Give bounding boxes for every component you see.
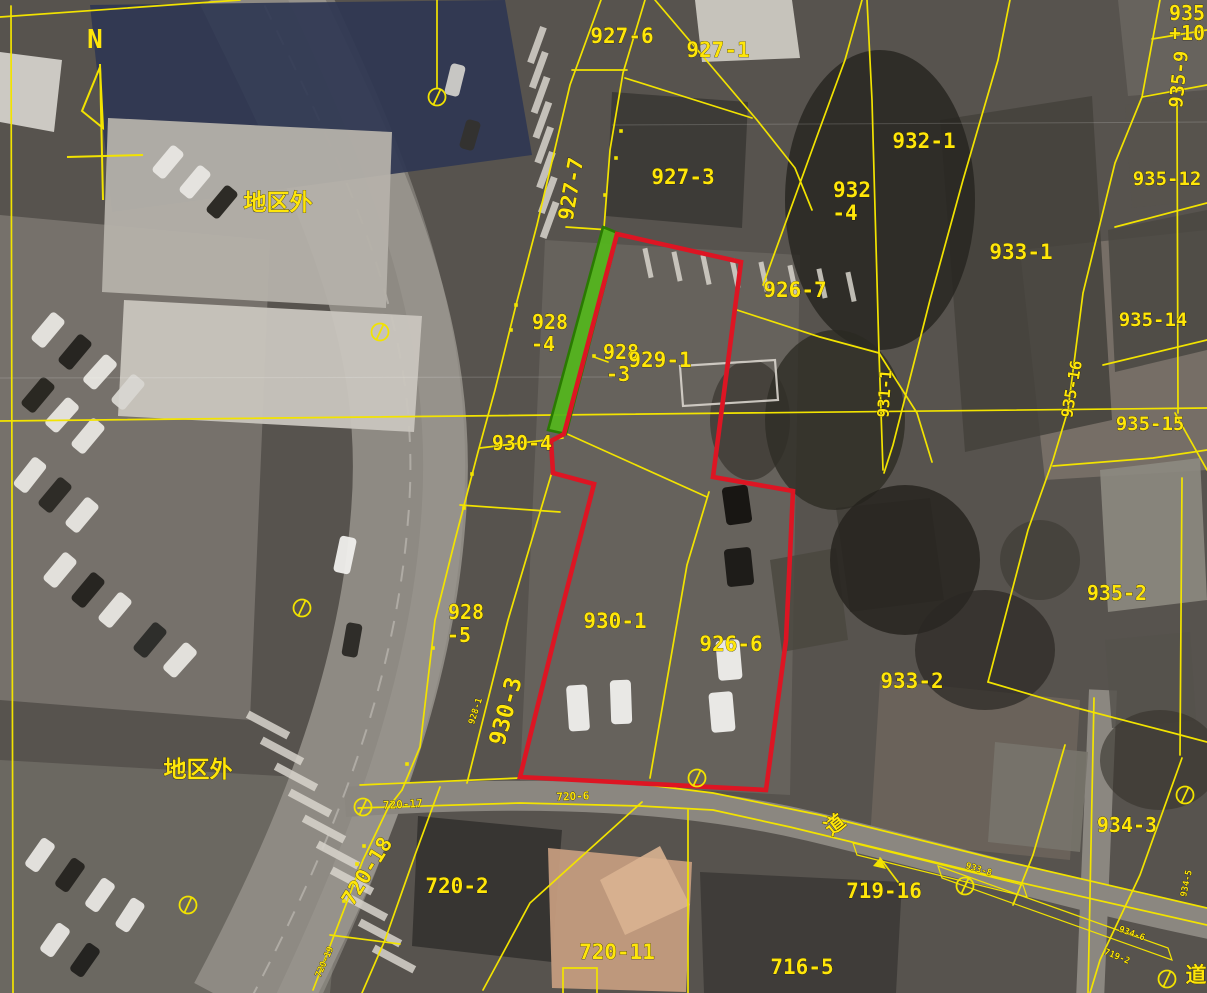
building-roof [0,52,62,132]
parcel-label-930-4: 930-4 [492,431,552,455]
parcel-label-928: 928 [532,310,568,334]
parcel-label-927-6: 927-6 [590,24,653,48]
survey-marker-slash [299,601,306,616]
parcel-label-927-7: 927-7 [554,156,589,222]
parcel-label-xxx: 地区外 [244,189,313,216]
boundary-tick-dot [592,354,596,358]
parcel-label-720-2: 720-2 [425,874,488,898]
parcel-label-930-1: 930-1 [583,609,646,633]
parcel-label-933-2: 933-2 [880,669,943,693]
parcel-label--3: -3 [606,362,630,386]
road-marking-stripe [248,714,289,736]
parcel-label--4: -4 [531,332,555,356]
building-roof [606,92,748,228]
road-surface [1090,690,1103,993]
cadastral-aerial-map: 927-6927-1927-7927-3932-1932-4933-1926-7… [0,0,1207,993]
parked-car [724,547,755,588]
boundary-tick-dot [514,303,518,307]
parcel-label-934-6: 934-6 [1117,925,1146,944]
parcel-label-929-1: 929-1 [628,348,691,372]
parked-car [566,684,590,731]
parcel-label-934-5: 934-5 [1179,869,1194,898]
building-roof [118,300,422,432]
building-roof [1108,210,1207,372]
survey-marker-icon [294,600,311,617]
parcel-label-x: 道 [1186,963,1207,987]
parcel-label--4: -4 [832,201,857,225]
parcel-label-720-11: 720-11 [579,940,655,964]
parcel-label-928: 928 [448,600,484,624]
parcel-boundary-line [1177,100,1178,413]
aerial-photo-layer [0,0,1207,993]
parcel-label-926-7: 926-7 [763,278,826,302]
boundary-tick-dot [614,156,618,160]
parcel-label-x10: +10 [1169,21,1205,45]
road-marking-stripe [360,922,401,944]
map-viewport: 927-6927-1927-7927-3932-1932-4933-1926-7… [0,0,1207,993]
tree-canopy [785,50,975,350]
parcel-label-935-14: 935-14 [1119,309,1188,331]
boundary-tick-dot [405,762,409,766]
parcel-label--5: -5 [447,623,471,647]
parcel-label-927-1: 927-1 [686,38,749,62]
parcel-label-932-1: 932-1 [892,129,955,153]
survey-marker-slash [1164,972,1171,987]
parcel-label-716-5: 716-5 [770,955,833,979]
boundary-tick-dot [362,844,366,848]
parcel-label-927-3: 927-3 [651,165,714,189]
parcel-label-926-6: 926-6 [699,632,762,656]
boundary-tick-dot [619,129,623,133]
compass-north-label: N [87,25,103,55]
parcel-label-931-1: 931-1 [873,369,895,418]
parcel-label-720-6: 720-6 [556,789,590,803]
boundary-tick-dot [431,646,435,650]
parcel-label-719-2: 719-2 [1102,947,1131,966]
survey-marker-icon [1159,971,1176,988]
road-marking-stripe [262,740,303,762]
parcel-label-934-3: 934-3 [1097,813,1157,837]
parked-car [708,691,735,733]
boundary-tick-dot [603,193,607,197]
parcel-label-932: 932 [833,178,871,202]
parcel-label-720-17: 720-17 [383,797,423,812]
parked-car [610,680,633,725]
parcel-label-933-1: 933-1 [989,240,1052,264]
boundary-tick-dot [462,506,466,510]
parcel-label-935-15: 935-15 [1116,413,1185,435]
boundary-tick-dot [470,472,474,476]
parcel-label-935-12: 935-12 [1133,168,1202,190]
building-roof [1125,98,1207,208]
parcel-label-xxx: 地区外 [164,756,233,783]
parcel-label-935-2: 935-2 [1087,581,1147,605]
parked-car [721,484,752,525]
parcel-label-719-16: 719-16 [846,879,922,903]
boundary-tick-dot [509,328,513,332]
